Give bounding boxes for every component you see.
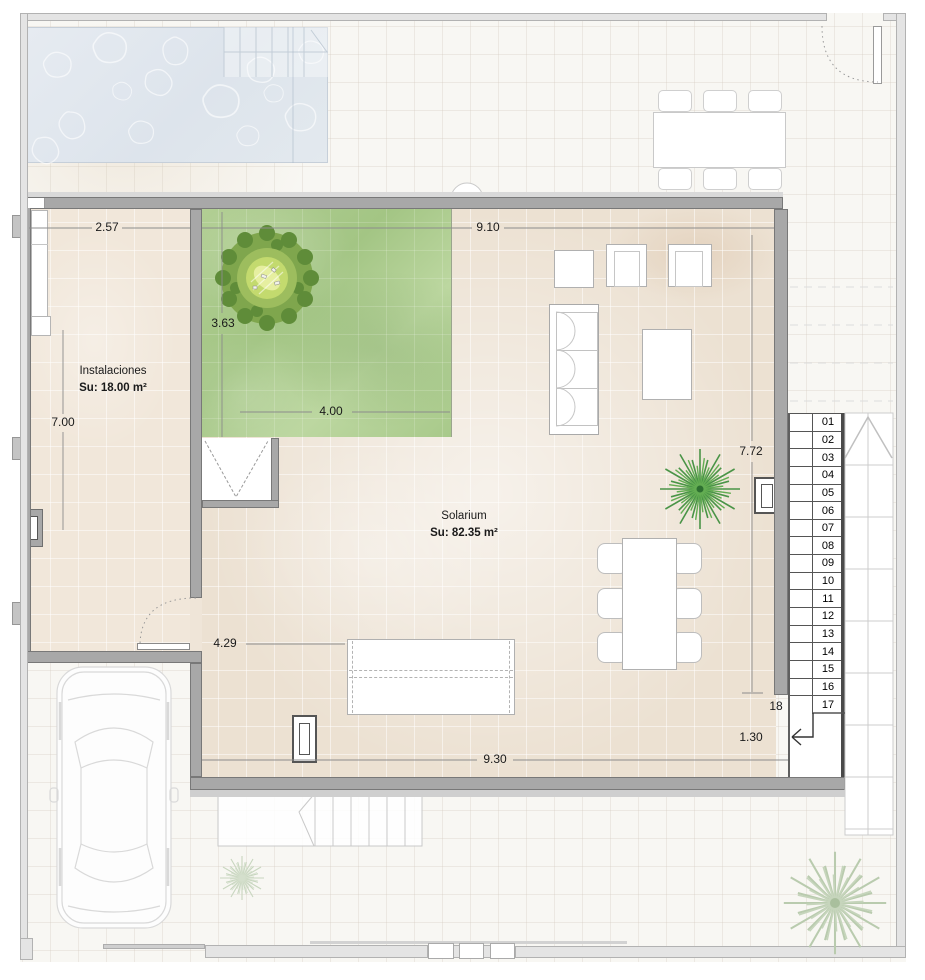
outdoor-table: [653, 112, 786, 168]
pool: [27, 27, 328, 163]
bench-dash: [349, 670, 513, 671]
wall-inner-upper: [190, 209, 202, 598]
vent-slot: [299, 723, 310, 755]
stair-step: 17: [790, 695, 843, 713]
dimension-label: 9.30: [483, 752, 506, 766]
stair-step: 09: [790, 554, 843, 572]
wall-instalaciones-south: [20, 651, 202, 663]
outdoor-chair: [703, 90, 737, 112]
stair-step: 12: [790, 607, 843, 625]
cupboard-shelf: [31, 244, 48, 245]
wall-shaft-south: [202, 500, 279, 508]
stair-step: 15: [790, 660, 843, 678]
gate-leaf: [873, 26, 882, 84]
wall-east: [774, 209, 788, 695]
boundary-wall-west: [20, 13, 28, 945]
outdoor-chair: [703, 168, 737, 190]
dimension-label: 4.29: [213, 636, 236, 650]
sofa-seat: [556, 312, 598, 426]
stair-step: 16: [790, 678, 843, 696]
stair-wall-east: [841, 413, 845, 777]
wall-north: [20, 197, 783, 209]
sun-lounger-cushion: [675, 251, 703, 287]
fence-opening: [490, 943, 515, 959]
cupboard: [31, 210, 48, 318]
stair-step: 10: [790, 572, 843, 590]
boundary-wall-south-corner: [20, 938, 33, 960]
stair-step: 04: [790, 466, 843, 484]
dimension-label: 7.72: [739, 444, 762, 458]
wall-shaft-east: [271, 438, 279, 508]
stairs: 01 02 03 04 05 06 07 08 09 10 11 12 13 1…: [788, 413, 841, 777]
shaft-void: [202, 438, 271, 500]
outdoor-chair: [658, 90, 692, 112]
room-area-instalaciones: Su: 18.00 m²: [79, 382, 147, 394]
wall-south: [190, 777, 845, 790]
door-leaf: [137, 643, 190, 650]
dimension-label: 18: [769, 699, 782, 713]
stair-step: 11: [790, 589, 843, 607]
dimension-label: 9.10: [476, 220, 499, 234]
stair-step: 07: [790, 519, 843, 537]
wall-inner-lower: [190, 663, 202, 777]
room-name-instalaciones: Instalaciones: [79, 365, 146, 377]
dimension-label: 7.00: [51, 415, 74, 429]
dimension-label: 2.57: [95, 220, 118, 234]
outdoor-chair: [748, 90, 782, 112]
outdoor-chair: [658, 168, 692, 190]
wall-south-face: [190, 790, 845, 797]
sun-lounger: [554, 250, 594, 288]
dining-table: [622, 538, 677, 670]
fence-opening: [459, 943, 484, 959]
stair-step: 06: [790, 501, 843, 519]
vent-slot: [761, 484, 773, 508]
sofa-cushion-divider: [556, 388, 598, 389]
stair-steps: 01 02 03 04 05 06 07 08 09 10 11 12 13 1…: [790, 413, 843, 713]
boundary-wall-south: [515, 946, 906, 958]
bench-dash: [349, 677, 513, 678]
stair-step: 02: [790, 431, 843, 449]
stair-step: 14: [790, 642, 843, 660]
driveway-gate: [103, 944, 205, 949]
dimension-label: 3.63: [211, 316, 234, 330]
boundary-wall-south: [205, 945, 428, 958]
outdoor-chair: [748, 168, 782, 190]
dimension-label: 1.30: [739, 730, 762, 744]
dimension-label: 4.00: [319, 404, 342, 418]
coffee-table: [642, 329, 692, 400]
floor-plan: 01 02 03 04 05 06 07 08 09 10 11 12 13 1…: [0, 0, 925, 980]
stair-step: 03: [790, 448, 843, 466]
room-area-solarium: Su: 82.35 m²: [430, 527, 498, 539]
room-instalaciones-floor: [29, 207, 192, 653]
wall-window: [27, 198, 45, 208]
boundary-wall-north: [20, 13, 827, 21]
stair-step: 05: [790, 484, 843, 502]
stair-step: 01: [790, 413, 843, 431]
room-name-solarium: Solarium: [441, 510, 486, 522]
sun-lounger-cushion: [614, 251, 640, 287]
cupboard: [31, 316, 51, 336]
boundary-wall-east: [896, 13, 906, 958]
lawn-area: [200, 207, 452, 437]
stair-step: 08: [790, 536, 843, 554]
stair-step: 13: [790, 625, 843, 643]
doorway-gap: [190, 598, 202, 651]
fence-opening: [428, 943, 454, 959]
sofa-cushion-divider: [556, 350, 598, 351]
